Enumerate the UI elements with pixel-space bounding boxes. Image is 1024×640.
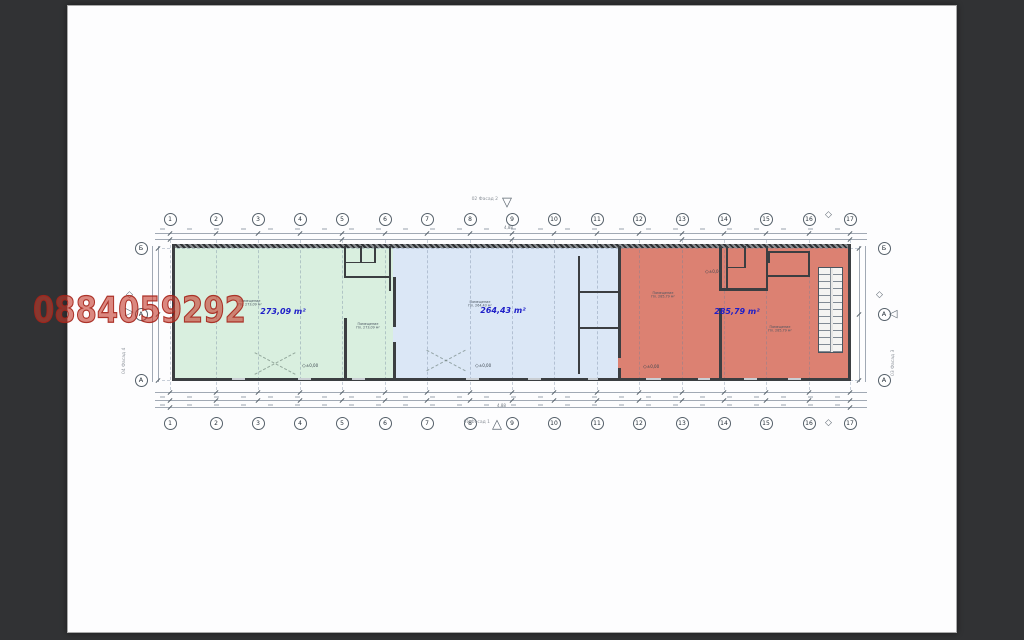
grid-bubble-top-4: 4 <box>294 213 307 226</box>
room-label: ПомещениеПл. 285,79 м² <box>760 325 799 333</box>
window-opening <box>646 378 661 380</box>
wall <box>848 244 852 381</box>
room-area: Пл. 285,79 м² <box>760 329 799 333</box>
wall <box>618 246 621 358</box>
row-bubble: А <box>878 374 891 387</box>
grid-bubble-bottom-13: 13 <box>676 417 689 430</box>
room-area: Пл. 273,09 м² <box>348 326 387 330</box>
watermark-text: 0884059292 <box>33 290 246 331</box>
viewer-canvas: 1122334455667788991010111112121313141415… <box>0 0 1024 640</box>
wall <box>618 368 621 378</box>
row-axis-line <box>162 248 858 249</box>
section-diamond-icon: ◇ <box>876 291 883 300</box>
wall <box>374 246 376 263</box>
wall <box>578 327 619 329</box>
grid-bubble-top-10: 10 <box>548 213 561 226</box>
grid-bubble-bottom-4: 4 <box>294 417 307 430</box>
grid-bubble-top-9: 9 <box>506 213 519 226</box>
wall <box>172 244 851 248</box>
area-label-green: 273,09 m² <box>238 307 328 316</box>
row-bubble: Б <box>135 242 148 255</box>
grid-bubble-top-14: 14 <box>718 213 731 226</box>
wall <box>726 267 744 269</box>
grid-bubble-top-6: 6 <box>379 213 392 226</box>
grid-axis-line <box>512 240 513 390</box>
level-marker: ◇±0,00 <box>302 363 318 369</box>
section-diamond-icon: ◇ <box>825 419 832 428</box>
ramp-cross-icon <box>424 344 468 375</box>
facade-triangle-bottom-icon: △ <box>492 418 502 431</box>
grid-axis-line <box>682 240 683 390</box>
row-bubble: А <box>135 374 148 387</box>
wall <box>393 342 396 378</box>
grid-bubble-top-11: 11 <box>591 213 604 226</box>
room-label: ПомещениеПл. 285,79 м² <box>643 291 682 299</box>
window-opening <box>698 378 710 380</box>
level-marker: ◇±0,00 <box>475 363 491 369</box>
level-value: ±0,00 <box>306 363 318 368</box>
facade-label-top: 02 Фасад 2 <box>440 197 498 202</box>
window-opening <box>466 378 479 380</box>
staircase <box>818 267 843 353</box>
section-diamond-icon: ◇ <box>825 211 832 220</box>
room-area: Пл. 285,79 м² <box>643 295 682 299</box>
ramp-cross-icon <box>252 348 298 377</box>
wall <box>808 251 810 277</box>
wall <box>768 275 810 277</box>
window-opening <box>588 378 598 380</box>
grid-bubble-top-15: 15 <box>760 213 773 226</box>
grid-bubble-top-16: 16 <box>803 213 816 226</box>
grid-bubble-top-13: 13 <box>676 213 689 226</box>
grid-bubble-top-2: 2 <box>210 213 223 226</box>
grid-bubble-bottom-11: 11 <box>591 417 604 430</box>
wall <box>360 246 362 263</box>
dimension-text-row <box>160 404 860 406</box>
facade-label-right: 03 Фасад 3 <box>891 328 896 376</box>
grid-axis-line <box>470 240 471 390</box>
window-opening <box>298 378 311 380</box>
level-marker: ◇±0,00 <box>643 364 659 370</box>
grid-bubble-top-7: 7 <box>421 213 434 226</box>
grid-bubble-top-8: 8 <box>464 213 477 226</box>
dimension-text-row <box>160 396 860 398</box>
wall <box>578 291 619 293</box>
stair-rail <box>830 268 833 352</box>
level-value: ±0,00 <box>709 269 721 274</box>
area-label-blue: 264,43 m² <box>458 306 548 315</box>
window-opening <box>788 378 801 380</box>
window-opening <box>232 378 245 380</box>
wall <box>344 318 347 378</box>
grid-bubble-bottom-9: 9 <box>506 417 519 430</box>
wall <box>744 246 746 268</box>
facade-label-bottom: 01 Фасад 1 <box>446 420 490 425</box>
grid-bubble-bottom-6: 6 <box>379 417 392 430</box>
grid-bubble-top-5: 5 <box>336 213 349 226</box>
grid-bubble-bottom-2: 2 <box>210 417 223 430</box>
area-label-red: 285,79 m² <box>692 307 782 316</box>
wall <box>719 308 722 378</box>
wall <box>768 251 770 263</box>
wall <box>768 251 810 253</box>
grid-bubble-bottom-5: 5 <box>336 417 349 430</box>
grid-bubble-top-3: 3 <box>252 213 265 226</box>
grid-bubble-bottom-15: 15 <box>760 417 773 430</box>
facade-label-left: 04 Фасад 4 <box>122 326 127 374</box>
grid-bubble-bottom-1: 1 <box>164 417 177 430</box>
grid-axis-line <box>597 240 598 390</box>
window-opening <box>744 378 757 380</box>
row-bubble: Б <box>878 242 891 255</box>
grid-bubble-top-12: 12 <box>633 213 646 226</box>
dimension-line <box>865 246 866 382</box>
window-opening <box>528 378 541 380</box>
grid-axis-line <box>385 240 386 390</box>
dimension-value: 4,88 <box>504 225 513 230</box>
wall <box>719 288 768 291</box>
facade-triangle-right-icon: ◁ <box>889 308 897 319</box>
level-value: ±0,00 <box>647 364 659 369</box>
wall <box>578 256 580 374</box>
wall <box>344 262 376 264</box>
wall <box>389 246 392 291</box>
dimension-line <box>155 407 867 408</box>
grid-bubble-bottom-16: 16 <box>803 417 816 430</box>
level-value: ±0,00 <box>479 363 491 368</box>
dimension-value: 4,88 <box>497 403 506 408</box>
grid-bubble-top-17: 17 <box>844 213 857 226</box>
window-opening <box>352 378 365 380</box>
wall <box>719 246 722 290</box>
facade-triangle-top-icon: ▽ <box>502 196 512 209</box>
grid-bubble-bottom-12: 12 <box>633 417 646 430</box>
grid-bubble-bottom-14: 14 <box>718 417 731 430</box>
grid-bubble-top-1: 1 <box>164 213 177 226</box>
grid-bubble-bottom-7: 7 <box>421 417 434 430</box>
wall <box>344 276 391 278</box>
grid-axis-line <box>639 240 640 390</box>
grid-axis-line <box>554 240 555 390</box>
grid-bubble-bottom-10: 10 <box>548 417 561 430</box>
grid-bubble-bottom-17: 17 <box>844 417 857 430</box>
grid-axis-line <box>342 240 343 390</box>
room-label: ПомещениеПл. 273,09 м² <box>348 322 387 330</box>
level-marker: ◇±0,00 <box>705 269 721 275</box>
grid-bubble-bottom-3: 3 <box>252 417 265 430</box>
wall <box>393 277 396 327</box>
